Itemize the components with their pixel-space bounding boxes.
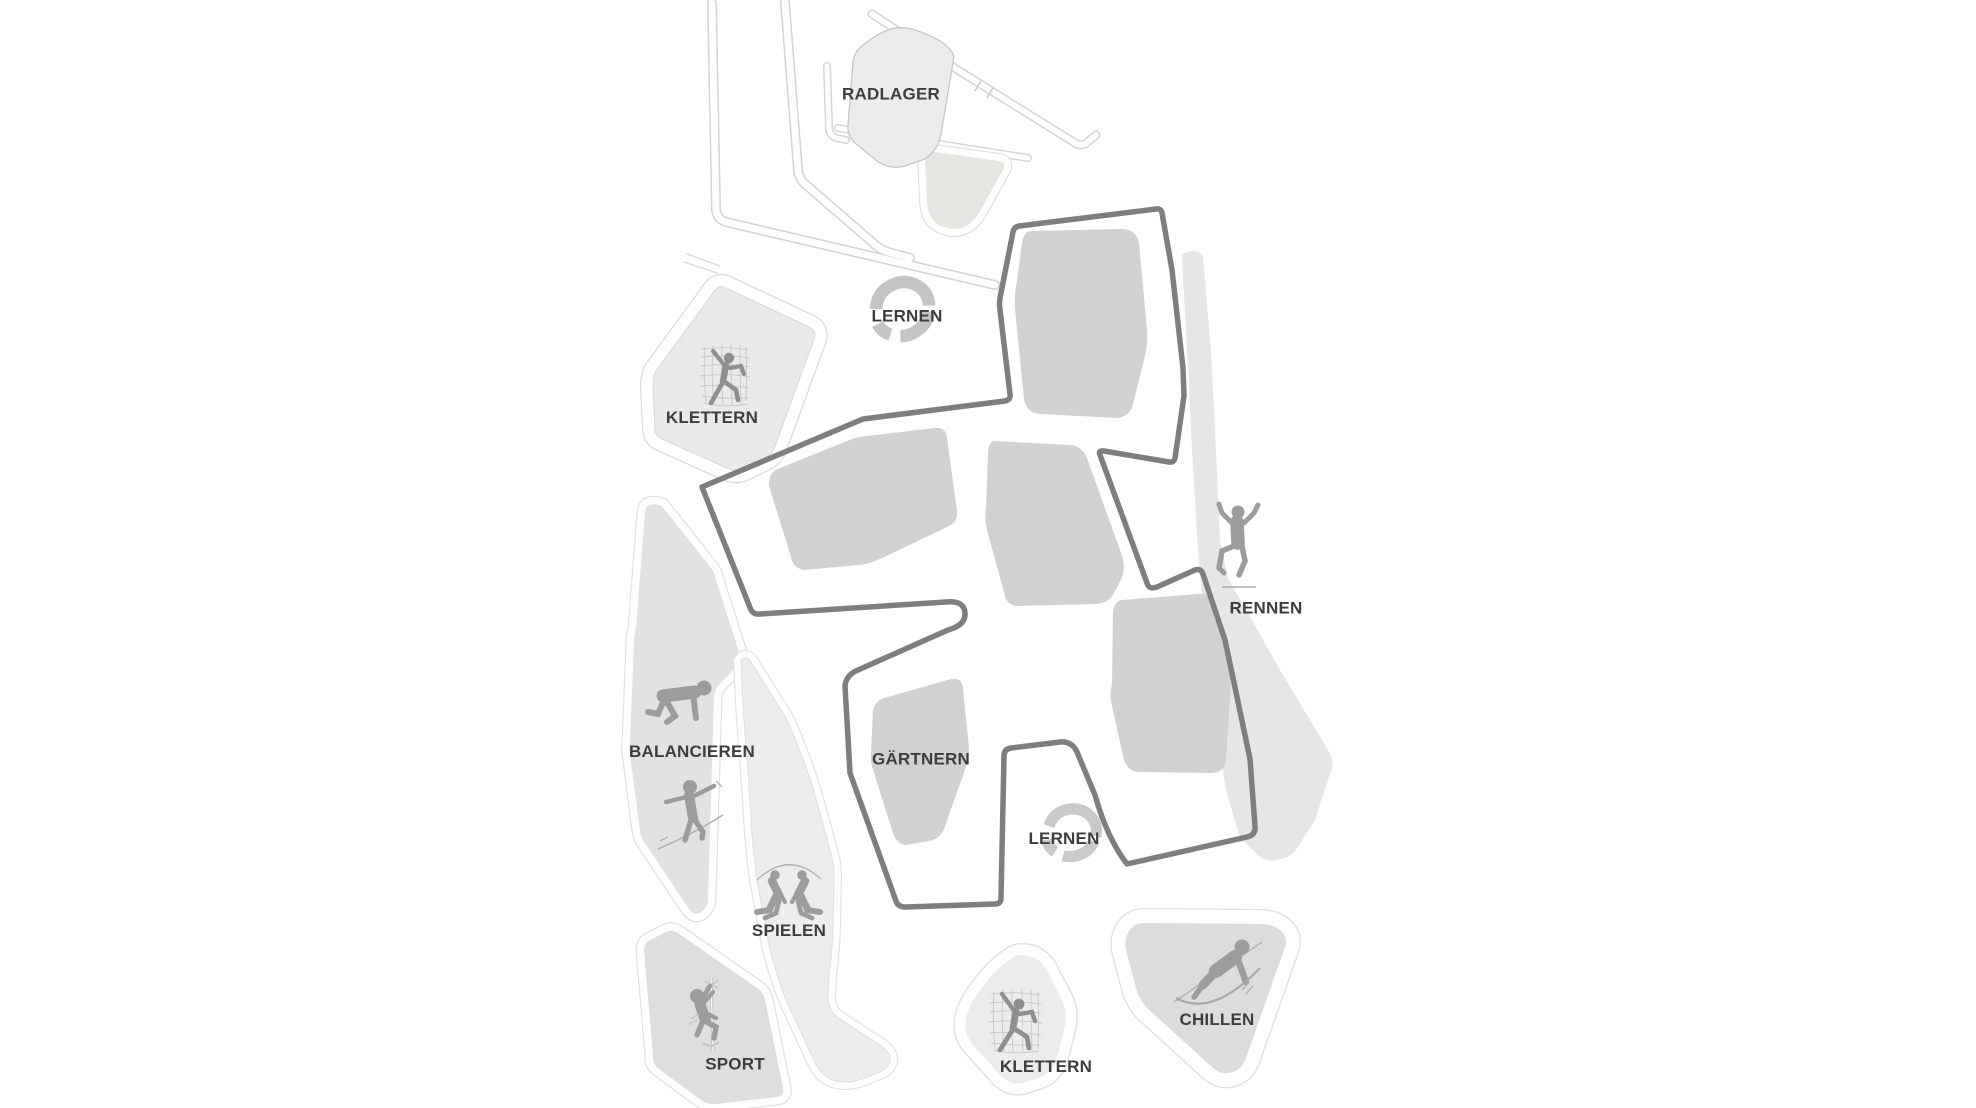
svg-text:LERNEN: LERNEN: [871, 307, 942, 326]
svg-text:RADLAGER: RADLAGER: [842, 85, 940, 104]
svg-text:SPIELEN: SPIELEN: [752, 921, 826, 940]
svg-text:RENNEN: RENNEN: [1230, 599, 1303, 618]
svg-text:BALANCIEREN: BALANCIEREN: [629, 742, 755, 761]
svg-text:SPORT: SPORT: [705, 1055, 765, 1074]
svg-text:CHILLEN: CHILLEN: [1179, 1010, 1254, 1029]
svg-text:KLETTERN: KLETTERN: [666, 408, 758, 427]
svg-text:KLETTERN: KLETTERN: [1000, 1057, 1092, 1076]
svg-text:GÄRTNERN: GÄRTNERN: [872, 750, 970, 769]
svg-text:LERNEN: LERNEN: [1028, 829, 1099, 848]
